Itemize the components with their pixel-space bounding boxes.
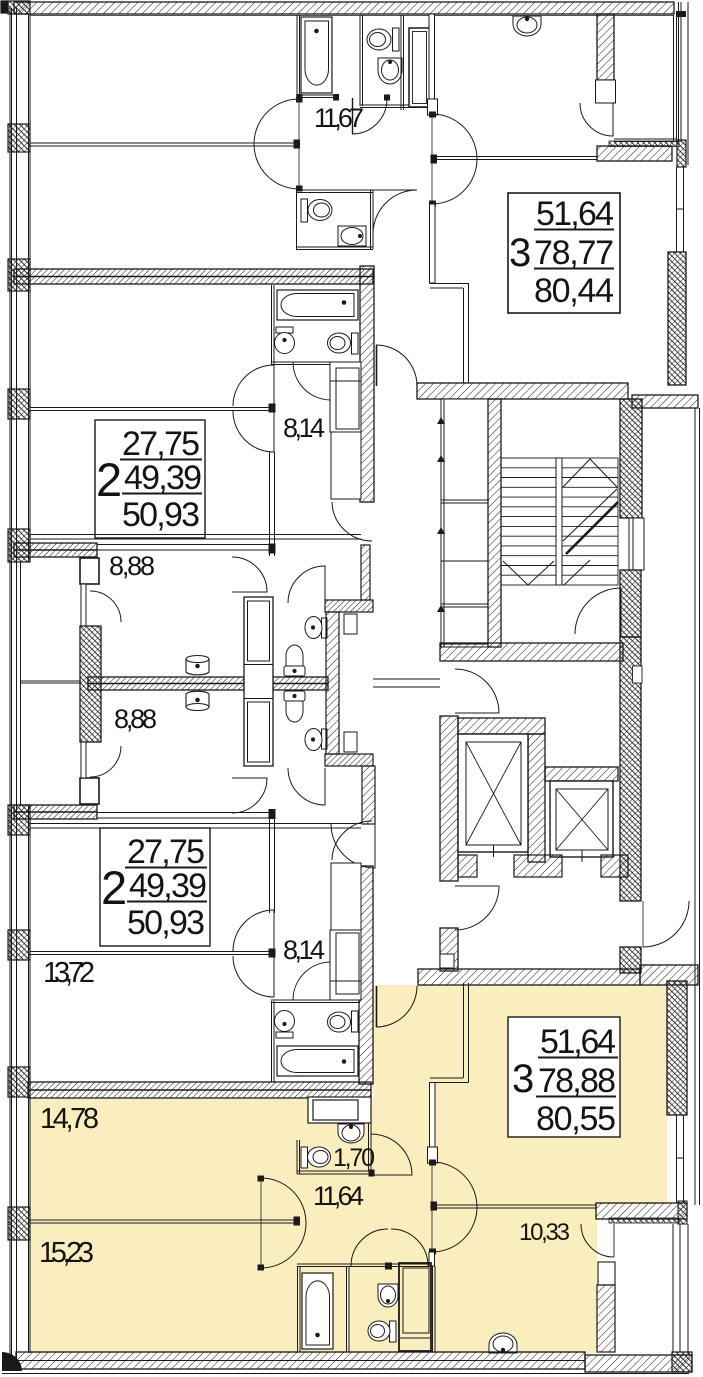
svg-text:80,55: 80,55 [536,1100,616,1138]
svg-text:11,64: 11,64 [313,1181,364,1211]
svg-text:14,78: 14,78 [40,1103,99,1135]
svg-text:49,39: 49,39 [129,867,207,905]
svg-text:78,77: 78,77 [534,234,614,272]
svg-text:78,88: 78,88 [538,1062,616,1100]
svg-text:10,33: 10,33 [519,1219,570,1246]
svg-text:1,70: 1,70 [333,1144,375,1172]
svg-text:13,72: 13,72 [43,957,95,989]
svg-text:51,64: 51,64 [540,1023,616,1061]
svg-text:3: 3 [509,231,531,275]
svg-text:8,88: 8,88 [109,551,155,581]
svg-text:2: 2 [101,861,127,914]
svg-text:2: 2 [96,453,122,506]
svg-text:27,75: 27,75 [127,833,205,871]
svg-text:80,44: 80,44 [534,272,614,310]
svg-text:8,14: 8,14 [283,935,325,965]
svg-text:15,23: 15,23 [39,1237,94,1269]
svg-text:3: 3 [512,1057,534,1101]
svg-text:50,93: 50,93 [122,496,200,534]
svg-text:51,64: 51,64 [536,195,614,233]
svg-text:27,75: 27,75 [122,425,200,463]
svg-text:49,39: 49,39 [124,459,202,497]
svg-text:8,88: 8,88 [114,704,157,734]
svg-text:8,14: 8,14 [283,413,325,443]
svg-text:50,93: 50,93 [127,904,205,942]
svg-text:11,67: 11,67 [314,103,364,133]
